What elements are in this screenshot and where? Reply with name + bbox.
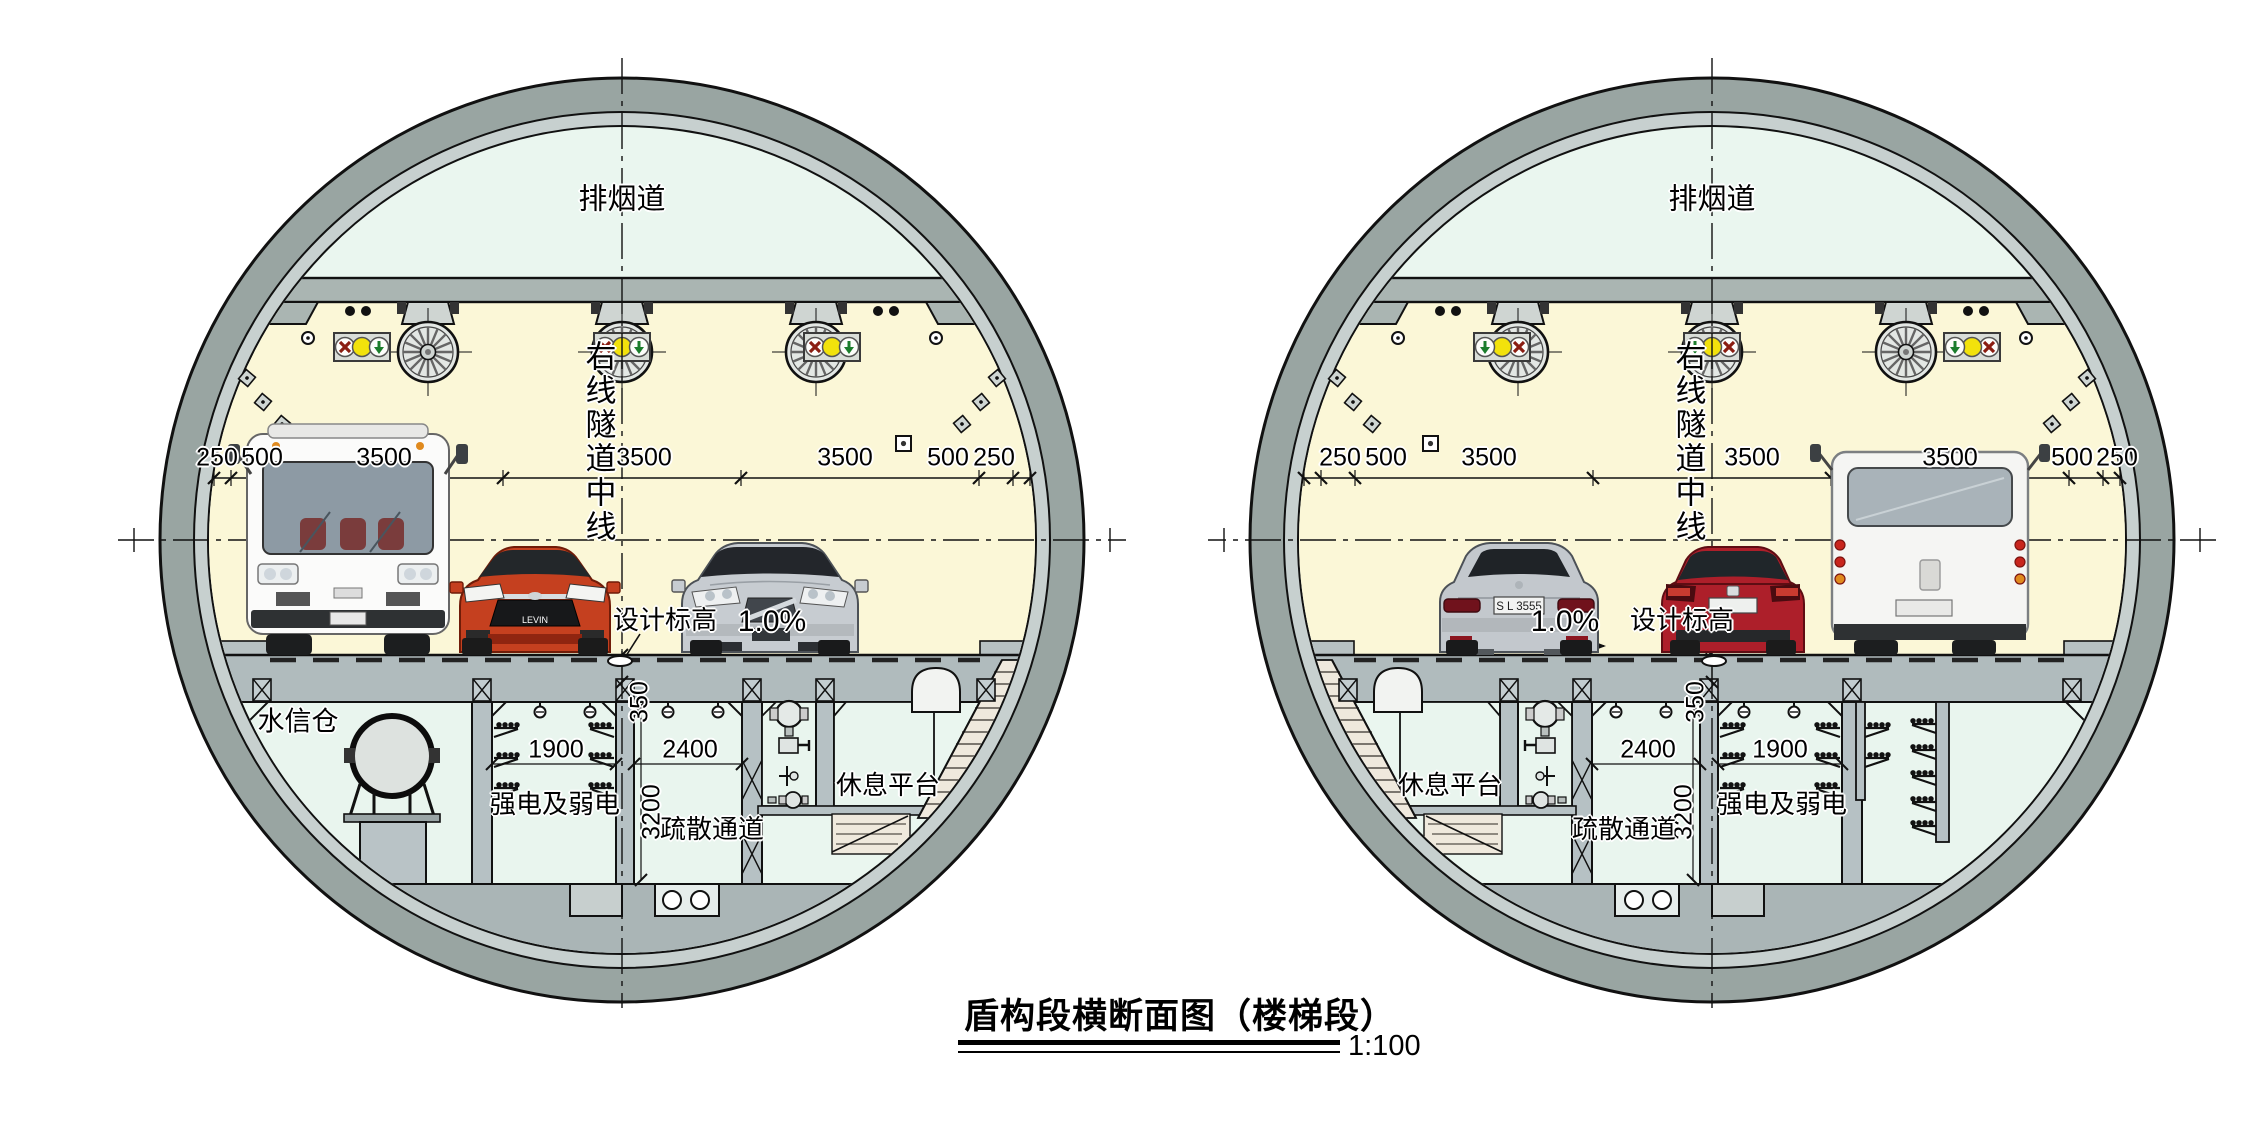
power-room-label-left: 强电及弱电	[490, 791, 620, 817]
water-room-label: 水信仓	[258, 709, 339, 736]
dim-500-left-a: 500	[241, 446, 283, 471]
dim-250-right-b: 250	[2096, 446, 2138, 471]
drawing-canvas: LEVIN	[0, 0, 2254, 1129]
evac-label-right: 疏散通道	[1572, 816, 1676, 842]
dim-3500-left-b: 3500	[616, 446, 672, 471]
dim-500-left-b: 500	[927, 446, 969, 471]
dim-250-left-a: 250	[196, 446, 238, 471]
dim-3500-right-c: 3500	[1922, 446, 1978, 471]
dim-3500-left-c: 3500	[817, 446, 873, 471]
rest-platform-label-left: 休息平台	[836, 772, 940, 798]
design-elevation-right: 设计标高	[1630, 607, 1734, 633]
dim-500-right-b: 500	[2051, 446, 2093, 471]
title-underline	[958, 1040, 1340, 1053]
water-pipe	[352, 716, 432, 796]
car-badge: LEVIN	[522, 615, 548, 625]
design-elevation-left: 设计标高	[613, 607, 717, 633]
deck-350-left: 350	[628, 681, 653, 723]
slope-label-left: 1.0%	[738, 607, 806, 637]
deck-350-right: 350	[1684, 681, 1709, 723]
dim-3500-left-a: 3500	[356, 446, 412, 471]
smoke-duct-label-left: 排烟道	[578, 186, 665, 215]
drawing-title: 盾构段横断面图（楼梯段）	[964, 988, 1396, 1039]
dim-3500-right-b: 3500	[1724, 446, 1780, 471]
drawing-scale: 1:100	[1348, 1030, 1421, 1063]
dim-3500-right-a: 3500	[1461, 446, 1517, 471]
centerline-label-left: 右线隧道中线	[583, 340, 614, 544]
power-width-right: 1900	[1752, 738, 1808, 763]
dim-500-right-a: 500	[1365, 446, 1407, 471]
power-width-left: 1900	[528, 738, 584, 763]
evac-width-left: 2400	[662, 738, 718, 763]
dim-250-left-b: 250	[973, 446, 1015, 471]
tunnel-cross-section-svg: LEVIN	[0, 0, 2254, 1129]
power-room-label-right: 强电及弱电	[1717, 791, 1847, 817]
dim-250-right-a: 250	[1319, 446, 1361, 471]
evac-label-left: 疏散通道	[660, 816, 764, 842]
rest-platform-label-right: 休息平台	[1398, 772, 1502, 798]
smoke-duct-label-right: 排烟道	[1668, 186, 1755, 215]
silver-car-rear: S L 3555	[1440, 543, 1598, 655]
evac-width-right: 2400	[1620, 738, 1676, 763]
bus-rear	[1810, 444, 2050, 655]
slope-label-right: 1.0%	[1531, 607, 1599, 637]
centerline-label-right: 右线隧道中线	[1673, 340, 1704, 544]
